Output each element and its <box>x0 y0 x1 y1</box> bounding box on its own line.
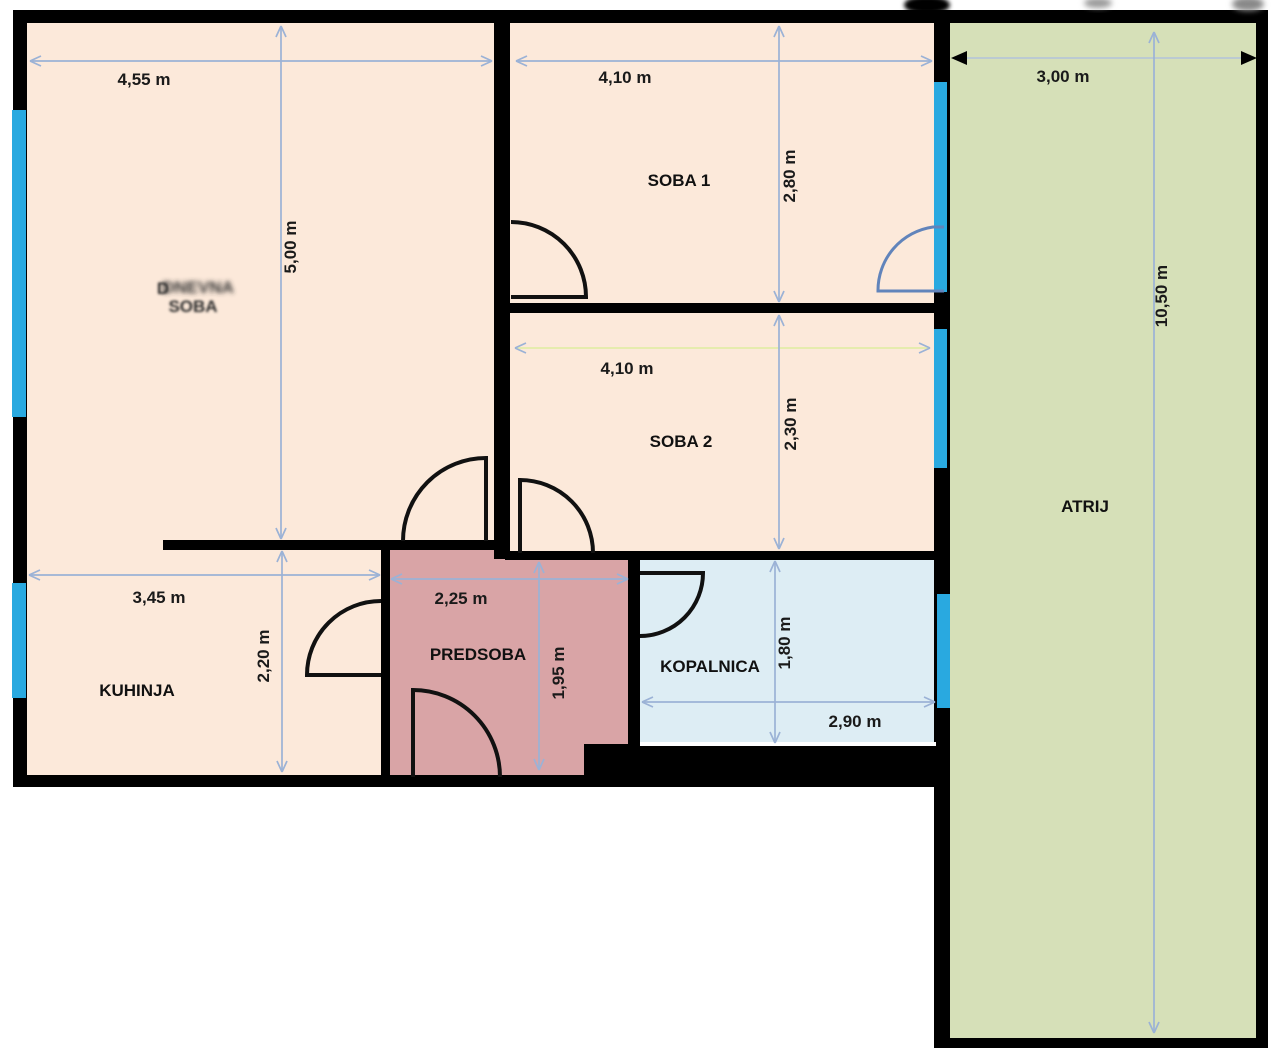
svg-text:D: D <box>157 279 169 298</box>
svg-text:4,10 m: 4,10 m <box>601 359 654 378</box>
svg-text:DNEVNA: DNEVNA <box>162 278 234 297</box>
svg-text:ATRIJ: ATRIJ <box>1061 497 1109 516</box>
svg-text:4,10 m: 4,10 m <box>599 68 652 87</box>
svg-text:1,95 m: 1,95 m <box>549 647 568 700</box>
svg-text:10,50 m: 10,50 m <box>1152 265 1171 327</box>
svg-text:SOBA 1: SOBA 1 <box>648 171 711 190</box>
svg-text:PREDSOBA: PREDSOBA <box>430 645 526 664</box>
svg-text:2,20 m: 2,20 m <box>254 630 273 683</box>
svg-text:5,00 m: 5,00 m <box>281 221 300 274</box>
svg-text:4,55 m: 4,55 m <box>118 70 171 89</box>
svg-text:SOBA 2: SOBA 2 <box>650 432 713 451</box>
svg-text:1,80 m: 1,80 m <box>775 617 794 670</box>
svg-text:3,00 m: 3,00 m <box>1037 67 1090 86</box>
svg-text:2,25 m: 2,25 m <box>435 589 488 608</box>
svg-text:2,90 m: 2,90 m <box>829 712 882 731</box>
svg-text:SOBA: SOBA <box>168 297 217 316</box>
svg-text:KUHINJA: KUHINJA <box>99 681 175 700</box>
svg-text:KOPALNICA: KOPALNICA <box>660 657 760 676</box>
svg-text:2,80 m: 2,80 m <box>780 150 799 203</box>
svg-text:2,30 m: 2,30 m <box>781 398 800 451</box>
svg-text:3,45 m: 3,45 m <box>133 588 186 607</box>
